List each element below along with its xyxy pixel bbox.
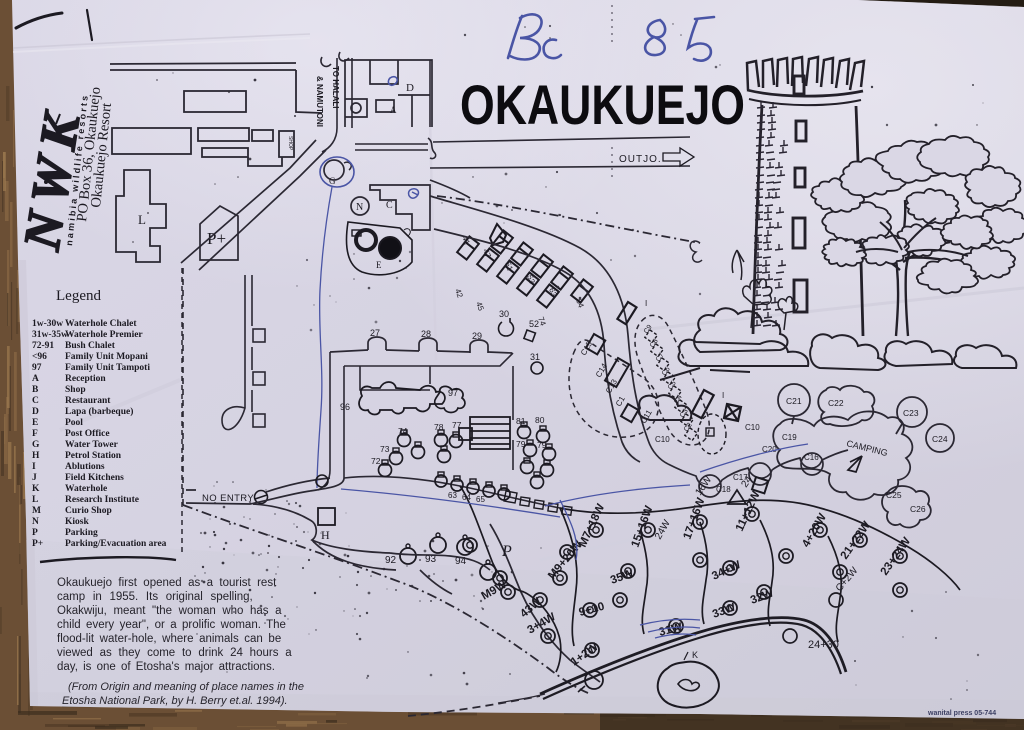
svg-text:Ablutions: Ablutions [65, 462, 105, 472]
svg-text:TO HALALI: TO HALALI [331, 66, 340, 109]
svg-text:D: D [406, 82, 414, 94]
svg-text:Pool: Pool [65, 418, 83, 428]
svg-text:M: M [32, 506, 41, 516]
svg-text:Post Office: Post Office [65, 429, 110, 439]
svg-text:flood-lit water-hole, where an: flood-lit water-hole, where animals can … [57, 633, 281, 645]
svg-text:96: 96 [340, 402, 350, 412]
svg-text:Waterhole Premier: Waterhole Premier [65, 330, 143, 340]
svg-text:child every year", or a prolif: child every year", or a prolific woman. … [57, 619, 286, 631]
svg-text:H: H [32, 451, 40, 461]
svg-text:C24: C24 [932, 434, 948, 444]
svg-text:C25: C25 [886, 490, 902, 500]
svg-text:Etosha National Park, by H. Be: Etosha National Park, by H. Berry et.al.… [62, 695, 288, 707]
svg-text:C16: C16 [804, 453, 819, 462]
svg-text:N: N [356, 202, 363, 213]
svg-text:C18: C18 [716, 485, 731, 494]
svg-text:78: 78 [434, 422, 444, 432]
svg-text:Bush Chalet: Bush Chalet [65, 341, 116, 351]
svg-text:97: 97 [32, 363, 42, 373]
svg-text:24+30: 24+30 [808, 639, 839, 651]
svg-text:Parking/Evacuation area: Parking/Evacuation area [65, 539, 167, 549]
svg-text:Okakwiju, meant "the woman who: Okakwiju, meant "the woman who has a [57, 605, 282, 617]
svg-text:Shop: Shop [65, 385, 86, 395]
svg-text:C26: C26 [910, 504, 926, 514]
svg-text:camp in 1955. Its original spe: camp in 1955. Its original spelling, [57, 591, 253, 603]
svg-text:81: 81 [516, 416, 526, 426]
svg-text:Okaukuejo first opened as a to: Okaukuejo first opened as a tourist rest [57, 577, 277, 589]
svg-text:D: D [32, 407, 39, 417]
svg-text:A: A [390, 105, 397, 115]
svg-text:day, is one of Etosha's major: day, is one of Etosha's major attraction… [57, 661, 275, 673]
svg-text:J: J [32, 473, 37, 483]
svg-text:P: P [501, 543, 512, 560]
svg-text:Water Tower: Water Tower [65, 440, 119, 450]
svg-text:31w-35w: 31w-35w [32, 330, 68, 340]
svg-text:C22: C22 [828, 398, 844, 408]
svg-text:G: G [32, 440, 40, 450]
svg-text:63: 63 [448, 491, 457, 500]
svg-text:G: G [329, 176, 336, 186]
svg-text:C21: C21 [786, 396, 802, 406]
svg-text:80: 80 [535, 415, 545, 425]
svg-text:E: E [376, 260, 382, 270]
svg-text:79: 79 [516, 439, 526, 449]
svg-text:65: 65 [476, 495, 485, 504]
svg-text:(From Origin and meaning of pl: (From Origin and meaning of place names … [68, 681, 304, 693]
svg-text:C: C [386, 200, 393, 211]
svg-text:29: 29 [472, 331, 482, 341]
svg-text:Restaurant: Restaurant [65, 396, 111, 406]
svg-text:A: A [32, 374, 39, 384]
svg-text:viewed as they come to drink 2: viewed as they come to drink 24 hours a [57, 647, 292, 659]
svg-text:OUTJO.: OUTJO. [619, 154, 662, 165]
svg-text:52: 52 [529, 319, 539, 329]
svg-text:OKAUKUEJO: OKAUKUEJO [460, 73, 745, 136]
svg-text:E: E [32, 418, 38, 428]
svg-text:I: I [645, 299, 647, 308]
svg-text:C10: C10 [745, 423, 760, 432]
svg-text:Research Institute: Research Institute [65, 495, 139, 505]
svg-text:1w-30w: 1w-30w [32, 319, 63, 329]
svg-text:77: 77 [452, 420, 462, 430]
svg-text:wanital press 05-744: wanital press 05-744 [927, 710, 996, 717]
svg-text:F: F [32, 429, 38, 439]
svg-text:73: 73 [380, 444, 390, 454]
svg-text:C23: C23 [903, 408, 919, 418]
svg-text:72-91: 72-91 [32, 341, 54, 351]
svg-text:Parking: Parking [65, 528, 98, 538]
svg-text:B: B [32, 385, 39, 395]
svg-text:Field Kitchens: Field Kitchens [65, 473, 124, 483]
svg-text:H: H [321, 528, 330, 542]
svg-text:I: I [722, 391, 724, 400]
svg-text:<96: <96 [32, 352, 47, 362]
svg-text:72: 72 [371, 456, 381, 466]
svg-text:Lapa (barbeque): Lapa (barbeque) [65, 406, 133, 417]
svg-text:SHOP: SHOP [287, 136, 293, 151]
svg-text:Waterhole Chalet: Waterhole Chalet [65, 319, 137, 329]
svg-text:Curio Shop: Curio Shop [65, 506, 112, 516]
svg-text:30: 30 [499, 309, 509, 319]
svg-text:Petrol Station: Petrol Station [65, 451, 122, 461]
svg-text:Legend: Legend [56, 288, 101, 304]
svg-text:Waterhole: Waterhole [65, 484, 107, 494]
svg-text:K: K [32, 484, 40, 494]
svg-text:NO ENTRY: NO ENTRY [202, 493, 254, 504]
svg-text:79: 79 [537, 440, 547, 450]
svg-text:I: I [32, 462, 36, 472]
svg-text:Family Unit Mopani: Family Unit Mopani [65, 352, 148, 362]
svg-text:C: C [32, 396, 39, 406]
svg-text:C19: C19 [782, 433, 797, 442]
svg-text:92: 92 [385, 555, 397, 566]
svg-text:K: K [692, 650, 698, 660]
svg-text:& NAMUTONI: & NAMUTONI [315, 76, 324, 127]
svg-text:74: 74 [398, 426, 408, 436]
svg-text:Kiosk: Kiosk [65, 517, 89, 527]
svg-text:P+: P+ [32, 539, 43, 549]
svg-text:C10: C10 [655, 435, 670, 444]
svg-text:31: 31 [530, 352, 540, 362]
svg-text:L: L [32, 495, 38, 505]
svg-text:Reception: Reception [65, 374, 106, 384]
svg-text:P: P [32, 528, 38, 538]
svg-text:97: 97 [448, 388, 458, 398]
svg-text:L: L [138, 212, 146, 227]
svg-text:Family Unit Tampoti: Family Unit Tampoti [65, 363, 150, 373]
svg-text:N: N [32, 517, 39, 527]
svg-text:27: 27 [370, 328, 380, 338]
svg-text:28: 28 [421, 329, 431, 339]
